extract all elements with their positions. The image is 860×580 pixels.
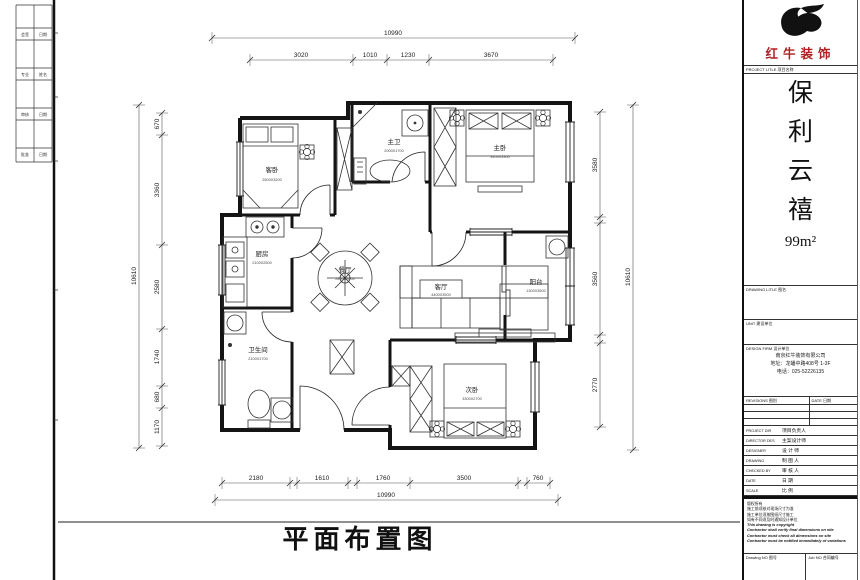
svg-text:2000X1700: 2000X1700 — [384, 149, 403, 153]
svg-text:670: 670 — [154, 118, 161, 129]
svg-text:审核: 审核 — [21, 111, 29, 117]
svg-text:日期: 日期 — [39, 31, 47, 37]
project-name-char: 云 — [744, 152, 857, 191]
svg-text:2400X2600: 2400X2600 — [335, 277, 354, 281]
room-label-wc: 卫生间2100X1700 — [248, 345, 268, 361]
drawing-no-label: Drawing NO 图号 — [744, 554, 805, 562]
svg-text:2100X1700: 2100X1700 — [248, 357, 267, 361]
svg-text:3580: 3580 — [592, 157, 599, 172]
svg-text:卫生间: 卫生间 — [248, 345, 268, 354]
floor-plan-canvas: 会签日期 专业姓名 审核日期 批准日期 — [0, 0, 742, 580]
room-label-kitchen: 厨房2100X2500 — [252, 249, 271, 265]
svg-text:2500X3200: 2500X3200 — [262, 178, 281, 182]
revision-row — [744, 412, 810, 419]
project-name-char: 保 — [744, 74, 857, 113]
project-name-char: 禧 — [744, 191, 857, 230]
svg-text:2770: 2770 — [592, 377, 599, 392]
room-label-second: 次卧3300X2700 — [462, 385, 481, 401]
svg-text:2100X2500: 2100X2500 — [252, 261, 271, 265]
field-project-dir: PROJECT DIR项目负责人 — [744, 426, 857, 436]
svg-text:日期: 日期 — [39, 111, 47, 117]
svg-text:10610: 10610 — [625, 268, 632, 286]
logo-section: 红牛装饰 — [744, 0, 857, 66]
edge-strip — [16, 0, 58, 580]
drawing-number-row: Drawing NO 图号 Job NO 合同编号 — [744, 553, 857, 580]
job-no-label: Job NO 合同编号 — [806, 554, 857, 562]
svg-text:主卫: 主卫 — [388, 137, 402, 146]
svg-text:会签: 会签 — [21, 31, 29, 37]
project-name-char: 利 — [744, 113, 857, 152]
room-label-balcony: 阳台1300X3500 — [526, 277, 545, 293]
svg-text:1760: 1760 — [376, 475, 391, 482]
svg-text:3360: 3360 — [154, 182, 161, 197]
sofa — [400, 266, 548, 330]
svg-text:日期: 日期 — [39, 151, 47, 157]
svg-text:680: 680 — [154, 391, 161, 402]
svg-text:厨房: 厨房 — [256, 249, 269, 258]
svg-text:1740: 1740 — [154, 349, 161, 364]
svg-text:2180: 2180 — [249, 475, 264, 482]
svg-text:4400X3500: 4400X3500 — [431, 293, 450, 297]
svg-text:专业: 专业 — [21, 71, 29, 77]
svg-text:3500: 3500 — [457, 475, 472, 482]
project-name: 保 利 云 禧 99m² — [744, 74, 857, 286]
hall-cabinet — [337, 128, 352, 190]
svg-text:10990: 10990 — [384, 30, 402, 37]
revision-row — [744, 419, 810, 426]
notes-section: 版权所有 施工前须核对现场尺寸为准 施工单位须按图纸尺寸施工 如有不同须及时通知… — [744, 499, 857, 553]
unit-label: UNIT 建设单位 — [744, 320, 857, 328]
svg-text:3300X2700: 3300X2700 — [462, 397, 481, 401]
svg-text:10610: 10610 — [131, 267, 138, 285]
design-firm-label: DESIGN FIRM 设计单位 — [744, 345, 857, 353]
windows — [218, 122, 575, 412]
date-label: DATE 日期 — [810, 397, 857, 405]
revisions-label: REVISIONS 图别 — [744, 397, 809, 405]
svg-text:餐厅: 餐厅 — [339, 265, 353, 274]
svg-text:3020: 3020 — [294, 52, 309, 59]
sheet-title: 平面布置图 — [282, 525, 437, 554]
project-label: PROJECT LITLE 项目名称 — [744, 66, 857, 74]
entry-cabinet — [330, 340, 354, 374]
revision-row — [744, 405, 810, 412]
svg-text:2580: 2580 — [154, 279, 161, 294]
brand-name: 红牛装饰 — [744, 43, 857, 62]
room-label-master: 主卧3400X3300 — [490, 143, 509, 159]
svg-text:次卧: 次卧 — [466, 385, 480, 394]
outer-walls — [222, 103, 570, 448]
firm-phone: 电话：025-52226135 — [744, 369, 857, 377]
lamp-icon — [299, 144, 314, 159]
field-director: DIRECTOR DES主案设计师 — [744, 436, 857, 446]
field-drawing: DRAWING制 图 人 — [744, 456, 857, 466]
svg-text:主卧: 主卧 — [494, 143, 508, 152]
room-label-dining: 餐厅2400X2600 — [335, 265, 354, 281]
field-designer: DESIGNER设 计 师 — [744, 446, 857, 456]
field-date: DATE日 期 — [744, 476, 857, 486]
redbull-logo-icon — [773, 3, 829, 37]
furniture — [223, 103, 568, 438]
svg-text:1610: 1610 — [315, 475, 330, 482]
svg-text:姓名: 姓名 — [39, 71, 47, 77]
revisions-table: REVISIONS 图别 DATE 日期 — [744, 397, 857, 426]
svg-text:3400X3300: 3400X3300 — [490, 155, 509, 159]
svg-text:3670: 3670 — [484, 52, 499, 59]
wc-fixtures — [224, 312, 293, 428]
svg-text:客卧: 客卧 — [266, 165, 280, 174]
field-checked: CHECKED BY审 核 人 — [744, 466, 857, 476]
drawing-sheet: 会签日期 专业姓名 审核日期 批准日期 — [0, 0, 860, 580]
drawing-title-box: DRAWING LITLE 图名 — [744, 286, 857, 320]
guest-bed — [243, 124, 314, 208]
svg-text:阳台: 阳台 — [530, 277, 543, 286]
svg-text:1300X3500: 1300X3500 — [526, 289, 545, 293]
svg-text:10990: 10990 — [377, 492, 395, 499]
svg-text:760: 760 — [533, 475, 544, 482]
washer — [546, 236, 568, 258]
room-label-master-bath: 主卫2000X1700 — [384, 137, 403, 153]
firm-address: 地址：龙蟠中路408号 1-3F — [744, 361, 857, 369]
firm-name: 南京红牛装饰有限公司 — [744, 353, 857, 361]
svg-text:3560: 3560 — [592, 271, 599, 286]
svg-text:1010: 1010 — [363, 52, 378, 59]
drawing-title-label: DRAWING LITLE 图名 — [744, 286, 857, 294]
project-area: 99m² — [744, 234, 857, 251]
svg-text:1230: 1230 — [401, 52, 416, 59]
svg-text:客厅: 客厅 — [435, 282, 449, 291]
svg-text:批准: 批准 — [21, 151, 29, 157]
room-label-guest: 客卧2500X3200 — [262, 165, 281, 182]
design-firm-box: DESIGN FIRM 设计单位 南京红牛装饰有限公司 地址：龙蟠中路408号 … — [744, 345, 857, 397]
field-scale: SCALE比 例 — [744, 486, 857, 496]
svg-text:1170: 1170 — [154, 420, 161, 434]
unit-box: UNIT 建设单位 — [744, 320, 857, 345]
title-block: 红牛装饰 PROJECT LITLE 项目名称 保 利 云 禧 99m² DRA… — [742, 0, 858, 580]
second-wardrobe — [392, 366, 432, 432]
